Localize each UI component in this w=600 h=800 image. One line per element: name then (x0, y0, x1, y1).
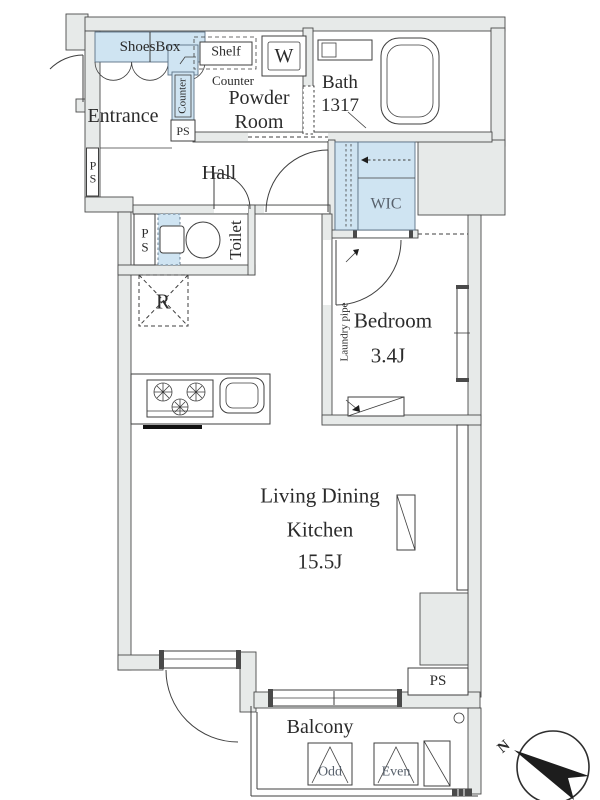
counter-vertical-label: Counter (176, 78, 189, 113)
refrigerator-label: R (156, 289, 170, 314)
wall-bottom-left (118, 655, 163, 670)
ldk-size-label: 15.5J (298, 549, 343, 574)
wic-fixtures (335, 142, 415, 230)
balcony-drain-grate (452, 789, 472, 796)
bedroom-door-arc (336, 240, 401, 305)
compass (514, 731, 589, 800)
laundry-pipe-leader-top (346, 252, 356, 262)
wall-right-upper (491, 28, 505, 146)
wall-right-chunk (418, 140, 505, 215)
ldk-door-arc (266, 150, 328, 212)
room-label-hall: Hall (202, 161, 236, 185)
room-label-balcony: Balcony (287, 715, 354, 739)
shaft-block (420, 593, 468, 665)
toilet-bowl (186, 222, 220, 258)
room-label-ldk: Living Dining Kitchen (235, 479, 405, 546)
entrance-door-arc (50, 55, 83, 69)
shelf-label: Shelf (211, 45, 241, 62)
partition-odd-label: Odd (318, 765, 342, 782)
wall-top (85, 17, 505, 31)
bedroom-window (457, 287, 468, 380)
shoesbox-label: ShoesBox (120, 38, 181, 56)
ldk-side-window (457, 425, 468, 590)
room-label-wic: WIC (370, 194, 401, 213)
laundry-pipe-label: Laundry pipe (338, 303, 351, 362)
wall-balcony-right (468, 708, 481, 794)
wall-east (468, 215, 481, 697)
room-label-powder: Powder Room (214, 86, 304, 134)
partition-even-label: Even (382, 765, 411, 782)
wic-pipe-strip (335, 142, 358, 230)
wall-toilet-right (248, 205, 255, 275)
balcony-fixtures (251, 706, 478, 796)
ps-living-label: PS (430, 672, 447, 690)
ps-entrance-label: PS (176, 124, 189, 138)
wic-closet (358, 142, 415, 230)
bedroom-size-label: 3.4J (371, 343, 405, 368)
toilet-tank (160, 226, 184, 253)
balcony-drain (454, 713, 464, 723)
kitchen-fixtures (131, 275, 270, 427)
room-label-bedroom: Bedroom (354, 308, 432, 333)
floorplan: ShoesBox Entrance Counter PS Shelf Count… (0, 0, 600, 800)
wall-left-lower (118, 212, 131, 670)
room-label-toilet: Toilet (226, 220, 246, 259)
wall-toilet-bottom (118, 265, 255, 275)
washer-label: W (275, 44, 294, 68)
wall-left-step (85, 197, 133, 212)
room-label-entrance: Entrance (87, 104, 158, 128)
ps-wall-label: PS (89, 159, 98, 184)
terrace-door-arc (166, 670, 238, 742)
terrace-door-window (162, 651, 240, 668)
room-label-bath: Bath 1317 (305, 72, 375, 118)
ps-toilet-label: PS (141, 226, 150, 253)
